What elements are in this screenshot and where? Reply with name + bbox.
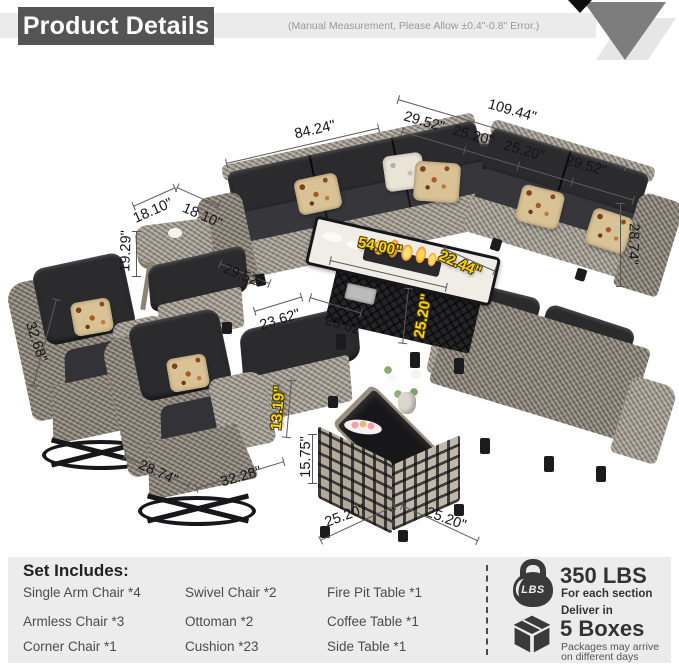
floral-pillow: [413, 160, 462, 203]
loveseat-leg: [544, 456, 554, 472]
dim-side-table-height: 19.29": [117, 230, 134, 272]
loveseat-leg: [596, 466, 606, 482]
set-item: Fire Pit Table *1: [327, 585, 422, 600]
set-item: Cushion *23: [185, 639, 259, 654]
set-item: Coffee Table *1: [327, 614, 419, 629]
delivery-boxes-value: 5 Boxes: [560, 616, 644, 642]
set-item: Ottoman *2: [185, 614, 253, 629]
product-details-infographic: Product Details (Manual Measurement, Ple…: [0, 0, 679, 668]
swivel-chair-2: [112, 312, 282, 552]
set-includes-title: Set Includes:: [23, 561, 129, 581]
kettlebell-icon: LBS: [513, 559, 553, 607]
fire-pit-table: [306, 226, 502, 376]
set-item: Armless Chair *3: [23, 614, 124, 629]
set-item: Single Arm Chair *4: [23, 585, 141, 600]
set-item: Corner Chair *1: [23, 639, 117, 654]
snack-plate: [322, 230, 344, 243]
sofa-leg: [574, 268, 587, 282]
page-title: Product Details: [18, 7, 214, 45]
fire-pit-leg: [454, 358, 464, 374]
coffee-table-leg: [398, 530, 408, 542]
set-item: Side Table *1: [327, 639, 406, 654]
weight-capacity-caption: For each section: [561, 588, 652, 600]
cup: [168, 228, 182, 238]
set-item: Swivel Chair *2: [185, 585, 277, 600]
loveseat-leg: [480, 438, 490, 454]
dimension-line: [136, 231, 137, 277]
corner-banner-accent-icon: [568, 0, 592, 13]
floral-pillow: [69, 297, 114, 337]
dim-coffee-height: 15.75": [298, 436, 314, 477]
weight-capacity-value: 350 LBS: [560, 563, 647, 589]
kettlebell-body: LBS: [513, 572, 553, 607]
divider: [486, 565, 488, 655]
box-icon: [510, 612, 554, 656]
vase: [398, 392, 416, 414]
control-panel: [344, 283, 377, 305]
kettlebell-label: LBS: [521, 584, 545, 596]
macarons: [350, 420, 376, 430]
corner-banner-icon: [584, 2, 666, 60]
fire-pit-leg: [336, 334, 346, 350]
delivery-caption-line2: on different days: [561, 651, 638, 663]
set-includes-panel: Set Includes: Single Arm Chair *4 Armles…: [8, 557, 671, 663]
dim-sofa-height: 28.74": [624, 223, 641, 265]
floral-pillow: [165, 353, 210, 393]
dimension-line: [620, 203, 621, 287]
measurement-note: (Manual Measurement, Please Allow ±0.4"-…: [288, 20, 539, 32]
